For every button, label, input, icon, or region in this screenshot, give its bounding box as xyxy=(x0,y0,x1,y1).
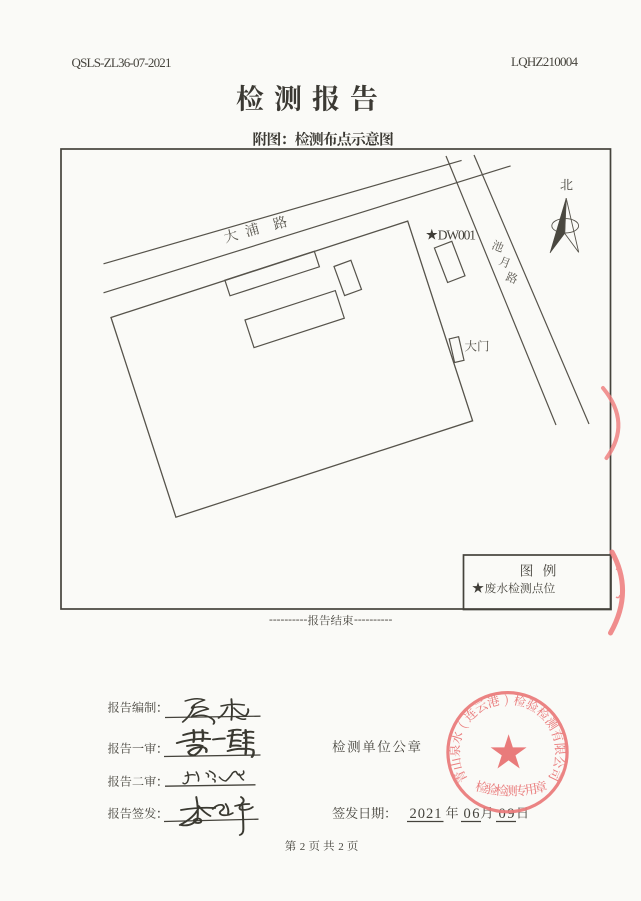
svg-text:09: 09 xyxy=(499,806,515,822)
svg-text:2021: 2021 xyxy=(410,806,442,822)
svg-text:2: 2 xyxy=(300,841,306,853)
svg-text:DW001: DW001 xyxy=(438,228,476,243)
svg-text:06: 06 xyxy=(464,806,480,822)
svg-text:LQHZ210004: LQHZ210004 xyxy=(511,54,579,69)
svg-text:----------: ---------- xyxy=(354,614,392,626)
svg-text:----------: ---------- xyxy=(269,614,307,626)
svg-text:QSLS-ZL36-07-2021: QSLS-ZL36-07-2021 xyxy=(72,55,172,70)
svg-text:2: 2 xyxy=(338,841,344,853)
